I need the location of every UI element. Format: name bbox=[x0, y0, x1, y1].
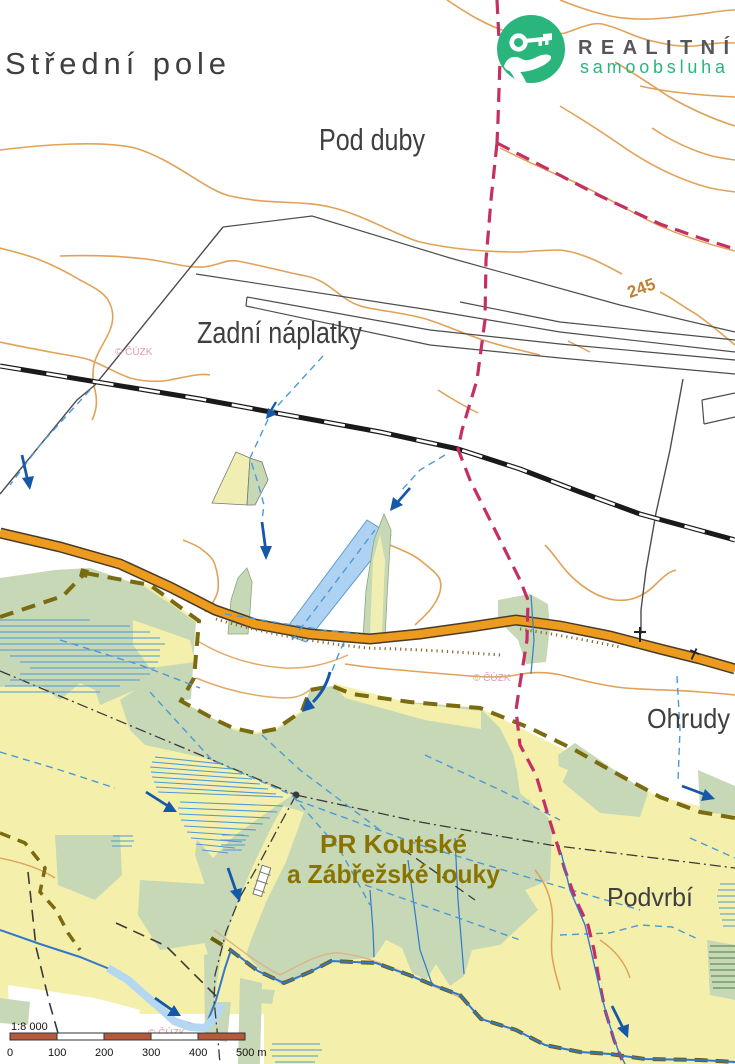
svg-text:REALITNÍ: REALITNÍ bbox=[578, 36, 729, 59]
svg-text:200: 200 bbox=[95, 1047, 113, 1059]
svg-text:Ohrudy: Ohrudy bbox=[647, 703, 730, 734]
svg-text:500 m: 500 m bbox=[236, 1047, 267, 1059]
svg-text:400: 400 bbox=[189, 1047, 207, 1059]
svg-text:Podvrbí: Podvrbí bbox=[607, 882, 694, 912]
svg-text:1:8 000: 1:8 000 bbox=[11, 1021, 48, 1033]
svg-text:© ČÚZK: © ČÚZK bbox=[473, 671, 511, 684]
svg-text:a Zábřežské louky: a Zábřežské louky bbox=[287, 859, 501, 889]
svg-text:300: 300 bbox=[142, 1047, 160, 1059]
svg-text:100: 100 bbox=[48, 1047, 66, 1059]
svg-text:PR Koutské: PR Koutské bbox=[320, 829, 467, 859]
svg-text:samoobsluha: samoobsluha bbox=[580, 57, 726, 77]
svg-text:0: 0 bbox=[7, 1047, 13, 1059]
svg-text:© ČÚZK: © ČÚZK bbox=[115, 345, 153, 358]
svg-text:Pod duby: Pod duby bbox=[319, 122, 425, 157]
svg-text:Zadní náplatky: Zadní náplatky bbox=[197, 315, 362, 350]
